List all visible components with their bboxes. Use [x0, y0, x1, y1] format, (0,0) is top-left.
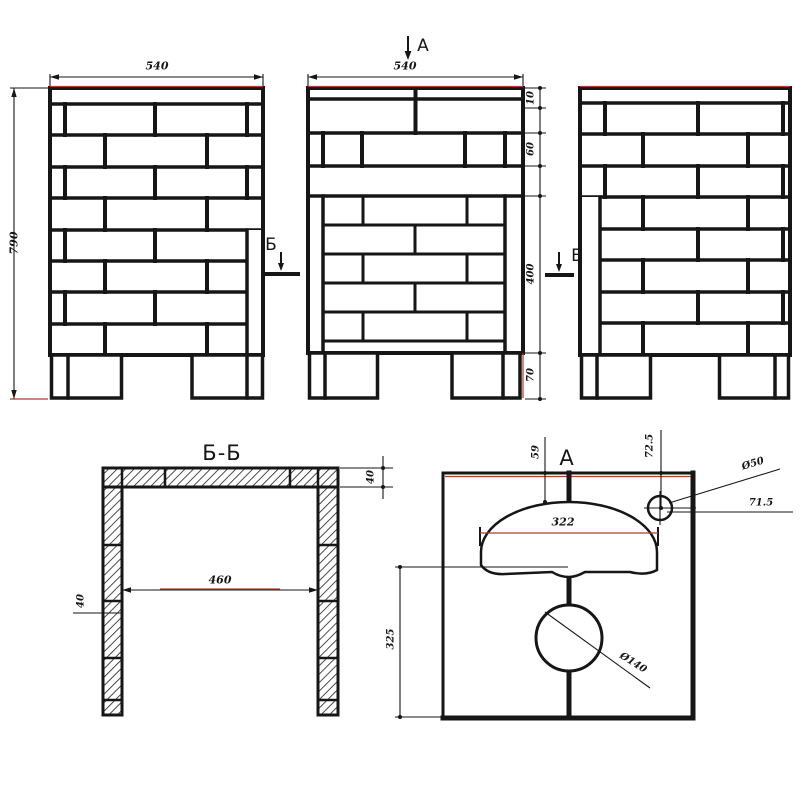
section-cut-mark-left: [266, 252, 298, 274]
corner-pillar-strip: [582, 197, 601, 354]
brick-course-lines: [580, 103, 790, 323]
arch-offset-dim: 59: [531, 445, 542, 459]
blueprint-page: 540 790 A 540 10 60 400 70 Б Б Б-Б 40 46…: [0, 0, 800, 800]
pipe-circle: [536, 605, 602, 671]
left-view-width-dim: 540: [146, 60, 169, 73]
wall-thickness-dim: 40: [76, 594, 87, 608]
firebox-joints: [363, 196, 467, 341]
section-cut-label-right: Б: [571, 246, 583, 266]
slab-thickness-dim: 40: [366, 470, 377, 484]
front-view-course-dim: 60: [526, 142, 537, 156]
section-cut-mark-right: [547, 252, 572, 275]
firebox-pillars: [323, 196, 505, 353]
plan-cut-label: A: [417, 36, 429, 56]
section-cut-label-left: Б: [265, 235, 277, 255]
section-view-title: Б-Б: [202, 441, 241, 465]
front-view-width-dim: 540: [394, 60, 417, 73]
left-leg: [52, 355, 122, 398]
top-slab: [103, 468, 338, 487]
left-elevation-view: [10, 74, 263, 399]
body-outline: [580, 88, 790, 355]
right-leg: [720, 355, 789, 398]
front-view-leg-dim: 70: [526, 368, 537, 382]
right-elevation-view: [580, 87, 790, 399]
front-view-cap-dim: 10: [526, 91, 537, 105]
section-bb-view: [73, 456, 393, 715]
hole-offset-h-dim: 71.5: [749, 498, 773, 509]
right-dim-stack: [525, 88, 546, 399]
drawing-canvas: [0, 0, 800, 800]
corner-pillar-strip: [247, 230, 262, 354]
left-leg: [582, 355, 651, 398]
plan-view-title: A: [559, 446, 574, 470]
inner-width-dim: 460: [209, 574, 232, 587]
right-leg: [452, 353, 520, 398]
front-view-opening-dim: 400: [526, 264, 537, 285]
width-dim-lines: [50, 74, 263, 87]
left-view-height-dim: 790: [8, 232, 21, 255]
arch-width-dim: 322: [552, 516, 575, 529]
depth-dim: 325: [386, 629, 397, 650]
right-leg: [192, 355, 263, 398]
hole-offset-v-dim: 72.5: [645, 434, 656, 458]
plan-view: [395, 430, 793, 719]
left-leg: [310, 353, 378, 398]
